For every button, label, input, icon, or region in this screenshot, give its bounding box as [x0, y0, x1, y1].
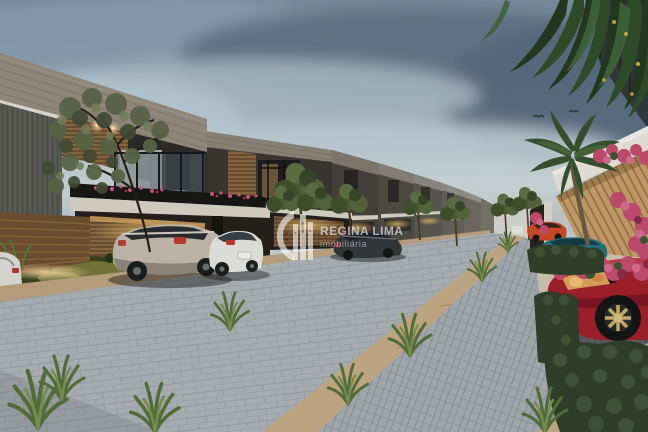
vignette	[0, 0, 648, 432]
property-photo: REGINA LIMA imobiliária	[0, 0, 648, 432]
scene-illustration	[0, 0, 648, 432]
